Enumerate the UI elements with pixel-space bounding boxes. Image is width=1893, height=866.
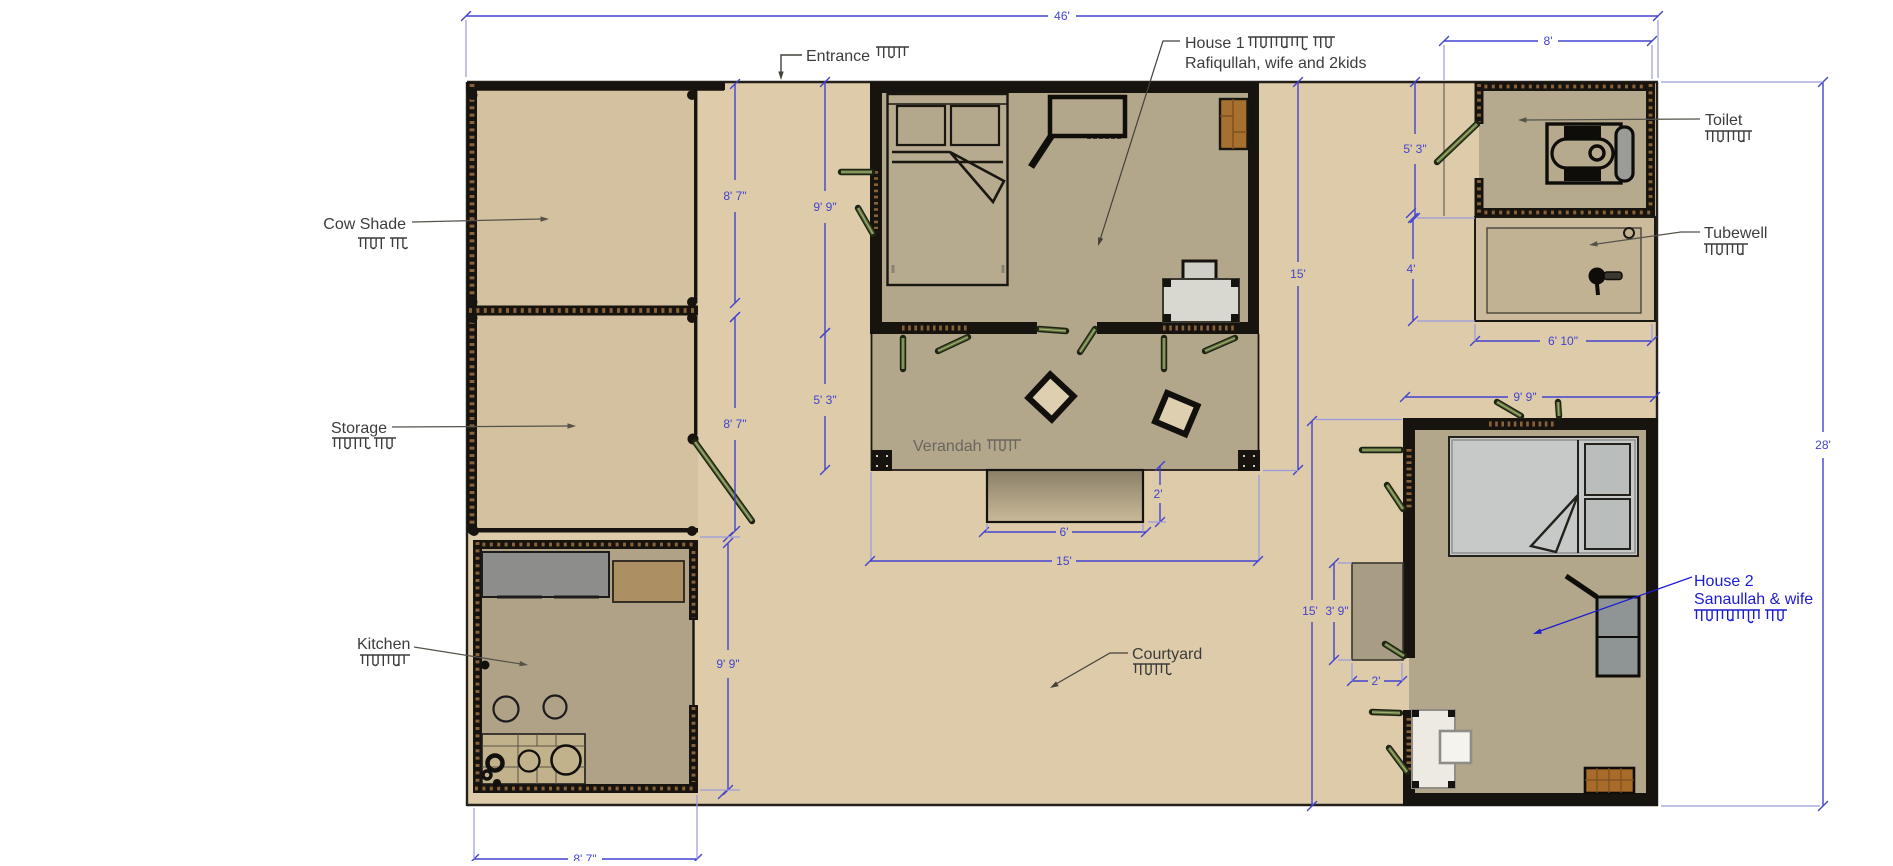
svg-text:8' 7": 8' 7" <box>723 189 746 203</box>
svg-text:8': 8' <box>1544 34 1553 48</box>
svg-text:15': 15' <box>1290 267 1306 281</box>
svg-text:Entrance: Entrance <box>806 48 870 65</box>
svg-text:5' 3": 5' 3" <box>1403 142 1426 156</box>
svg-text:9' 9": 9' 9" <box>716 657 739 671</box>
svg-text:House 1: House 1 <box>1185 35 1245 52</box>
svg-text:9' 9": 9' 9" <box>813 200 836 214</box>
svg-text:2': 2' <box>1154 487 1163 501</box>
svg-text:5' 3": 5' 3" <box>813 393 836 407</box>
svg-text:Kitchen: Kitchen <box>357 636 410 653</box>
svg-text:6': 6' <box>1060 525 1069 539</box>
svg-text:Courtyard: Courtyard <box>1132 646 1202 663</box>
svg-text:15': 15' <box>1302 604 1318 618</box>
svg-text:8' 7": 8' 7" <box>723 417 746 431</box>
svg-text:6' 10": 6' 10" <box>1548 334 1578 348</box>
svg-text:46': 46' <box>1054 9 1070 23</box>
svg-text:2': 2' <box>1372 674 1381 688</box>
svg-text:House 2: House 2 <box>1694 573 1754 590</box>
svg-text:9' 9": 9' 9" <box>1513 390 1536 404</box>
svg-text:28': 28' <box>1815 438 1831 452</box>
svg-text:Verandah: Verandah <box>913 438 982 455</box>
svg-text:3' 9": 3' 9" <box>1325 604 1348 618</box>
svg-text:15': 15' <box>1056 554 1072 568</box>
svg-text:Sanaullah & wife: Sanaullah & wife <box>1694 591 1813 608</box>
svg-text:8' 7": 8' 7" <box>573 852 596 861</box>
svg-text:Cow Shade: Cow Shade <box>323 216 406 233</box>
svg-text:Tubewell: Tubewell <box>1704 225 1767 242</box>
svg-text:Toilet: Toilet <box>1705 112 1743 129</box>
svg-text:Rafiqullah, wife and 2kids: Rafiqullah, wife and 2kids <box>1185 55 1366 72</box>
svg-text:4': 4' <box>1407 262 1416 276</box>
svg-text:Storage: Storage <box>331 420 387 437</box>
